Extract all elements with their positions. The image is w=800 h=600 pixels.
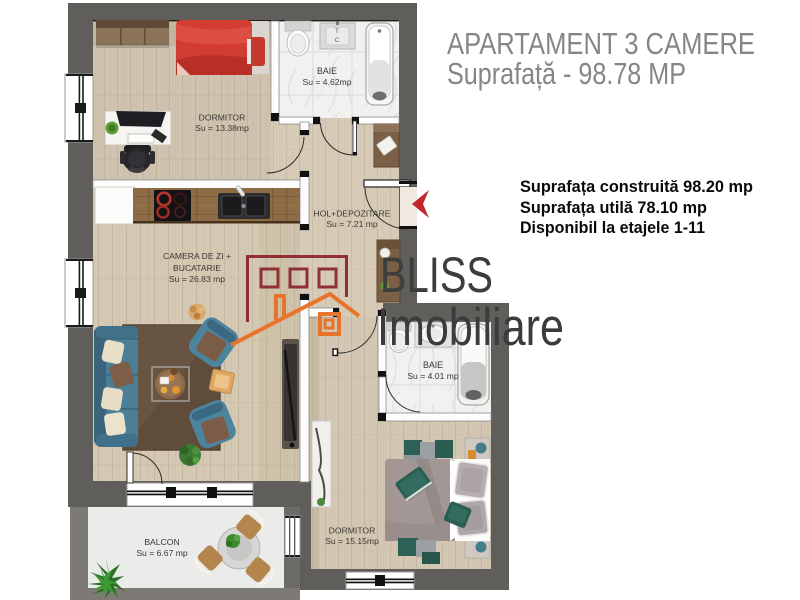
svg-text:DORMITOR: DORMITOR: [329, 526, 376, 536]
svg-text:Su = 7.21 mp: Su = 7.21 mp: [326, 219, 378, 229]
svg-text:BAIE: BAIE: [317, 66, 337, 76]
svg-text:BUCATARIE: BUCATARIE: [173, 263, 221, 273]
svg-text:T: T: [335, 29, 339, 35]
svg-text:Su = 6.67 mp: Su = 6.67 mp: [136, 548, 188, 558]
svg-text:Su = 4.01 mp: Su = 4.01 mp: [407, 371, 459, 381]
svg-text:DORMITOR: DORMITOR: [199, 113, 246, 123]
svg-text:BLISS: BLISS: [380, 247, 493, 303]
svg-text:CAMERA DE ZI +: CAMERA DE ZI +: [163, 251, 231, 261]
svg-text:Suprafața construită 98.20 mp: Suprafața construită 98.20 mp: [520, 178, 753, 196]
svg-text:APARTAMENT 3 CAMERE: APARTAMENT 3 CAMERE: [447, 27, 755, 61]
svg-text:Disponibil la etajele 1-11: Disponibil la etajele 1-11: [520, 219, 705, 237]
svg-text:Su = 26.83 mp: Su = 26.83 mp: [169, 274, 225, 284]
svg-text:BAIE: BAIE: [423, 360, 443, 370]
svg-text:Su = 4.62mp: Su = 4.62mp: [303, 77, 352, 87]
svg-text:HOL+DEPOZITARE: HOL+DEPOZITARE: [314, 209, 391, 219]
svg-text:BALCON: BALCON: [144, 537, 179, 547]
svg-text:Su = 13.38mp: Su = 13.38mp: [195, 123, 249, 133]
svg-text:Suprafață - 98.78 MP: Suprafață - 98.78 MP: [447, 57, 686, 91]
svg-text:Suprafața utilă 78.10 mp: Suprafața utilă 78.10 mp: [520, 199, 707, 217]
svg-text:Su = 15.15mp: Su = 15.15mp: [325, 536, 379, 546]
svg-text:Imobiliare: Imobiliare: [377, 298, 564, 357]
svg-text:C: C: [335, 38, 340, 44]
